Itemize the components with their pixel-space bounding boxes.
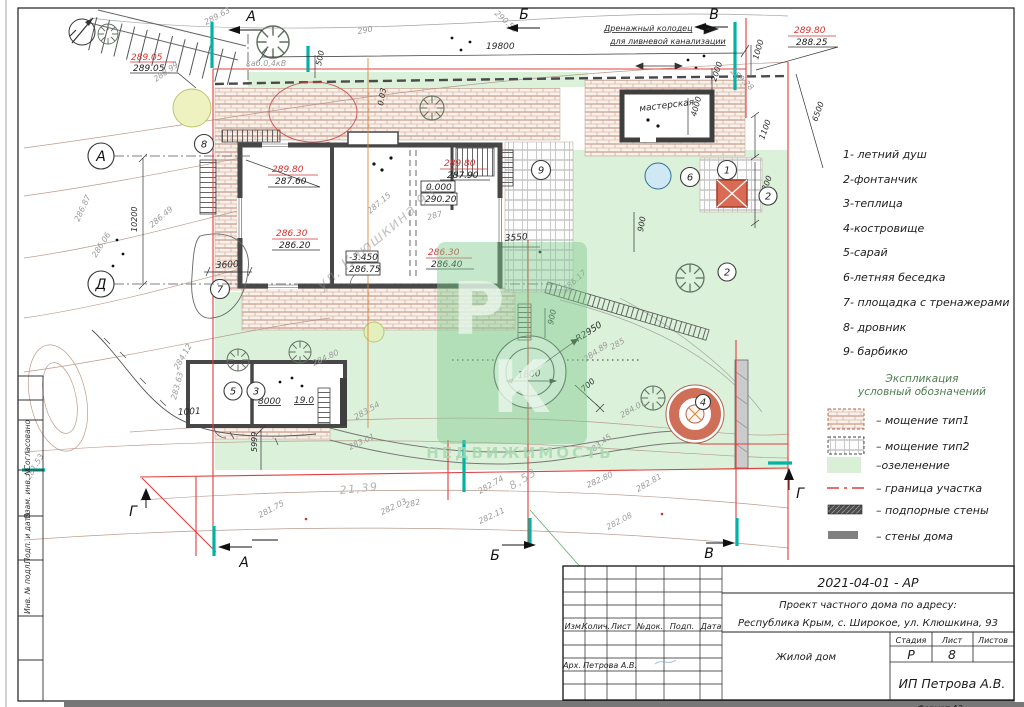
legend-swatch-paving1 [828,409,864,429]
marker-5: 5 [230,387,236,398]
stamp-label-inv: Инв. № подл. [23,562,32,614]
watermark-letter-k: К [492,345,551,429]
legend-item-1: 1- летний душ [843,148,927,161]
site-plan-svg: Дренажный колодец для ливневой канализац… [0,0,1024,707]
col-kol: Колич. [582,622,610,631]
sheets-header: Листов [977,636,1008,645]
fountain [645,163,671,189]
cable-label: каб.0,4кВ [246,59,286,68]
legend-item-8: 8- дровник [843,321,907,334]
axis-a-bottom: А [238,555,249,571]
legend-label-retain: – подпорные стены [876,504,989,517]
object-name: Жилой дом [775,652,836,663]
axis-g-left: Г [129,504,138,520]
dim-10200: 10200 [130,207,139,232]
legend-item-6: 6-летняя беседка [843,271,946,284]
stamp-label-podp: Подп. и дата [23,512,32,563]
woodshed-hatch [200,160,216,214]
axis-b-top: Б [519,7,529,23]
legend-item-2: 2-фонтанчик [843,173,918,186]
elev-5-red: 286.30 [276,229,308,239]
legend-swatch-retain [828,505,862,514]
legend-label-paving1: – мощение тип1 [876,414,970,427]
company-name: ИП Петрова А.В. [899,676,1006,691]
stage-value: Р [907,647,915,662]
marker-9: 9 [538,166,544,177]
marker-8: 8 [201,140,207,151]
legend-item-5: 5-сарай [843,246,888,259]
elev-8-black: 288.25 [796,38,828,48]
elev-2-red: 289.80 [272,165,304,175]
legend-heading-2: условный обозначений [857,386,986,398]
stage-header: Стадия [896,636,927,645]
dim-1001: 1001 [178,407,201,418]
marker-4: 4 [700,398,706,409]
doc-code: 2021-04-01 - АР [817,575,919,590]
title-block: 2021-04-01 - АР Проект частного дома по … [562,566,1014,707]
col-ndok: №док. [636,622,663,631]
elev-3-red: 289.80 [444,159,476,169]
elev-8-red: 289.80 [794,26,826,36]
legend-item-3: 3-теплица [843,197,903,210]
dim-190: 19.0 [294,396,314,406]
legend-swatch-walls [828,531,858,539]
legend-item-9: 9- барбикю [843,345,908,358]
legend-swatch-green [827,457,861,473]
dim-19800: 19800 [486,42,515,52]
drain-label-2: для ливневой канализации [609,37,726,46]
col-data: Дата [700,622,722,631]
role-arch: Арх. [562,661,581,670]
col-izm: Изм. [565,622,584,631]
elev-2-black: 287.60 [275,177,307,187]
legend-heading-1: Экспликация [885,373,959,385]
dim-3600: 3600 [216,260,240,271]
axis-d-left: Д [95,277,107,293]
dim-5999: 5999 [250,432,259,452]
legend-item-7: 7- площадка с тренажерами [843,296,1010,309]
legend-label-border: – граница участка [876,482,982,495]
axis-v-top: В [709,7,719,23]
stamp-label-agreed: Согласовано [23,419,32,470]
elev-5-black: 286.20 [279,241,311,251]
axis-a-left: А [95,149,106,165]
drain-label-1: Дренажный колодец [603,24,693,33]
marker-2: 2 [765,192,771,203]
watermark-text: НЕДВИЖИМОСТЬ [426,444,613,462]
project-title-1: Проект частного дома по адресу: [779,600,957,611]
project-title-2: Республика Крым, с. Широкое, ул. Клюшкин… [738,617,998,629]
legend-item-4: 4-костровище [843,222,925,235]
arch-name: Петрова А.В. [583,661,637,670]
stamp-label-vzam: Взам. инв. № [23,467,32,518]
axis-v-bottom: В [704,546,714,562]
col-list: Лист [610,622,632,631]
legend-label-paving2: – мощение тип2 [876,440,970,453]
col-podp: Подп. [670,622,694,631]
elev-3-black: 287.90 [447,171,479,181]
sheet-header: Лист [941,636,963,645]
marker-1: 1 [724,166,730,177]
sheet-value: 8 [948,647,956,662]
elev-1-red: 289.05 [131,53,163,63]
marker-6: 6 [687,173,693,184]
axis-b-bottom: Б [490,548,500,564]
watermark-letter-p: Р [452,267,505,351]
marker-3: 3 [253,387,259,398]
axis-a-top: А [245,9,256,25]
marker-7: 7 [217,285,224,296]
legend-swatch-paving2 [828,437,864,454]
marker-2b: 2 [724,268,730,279]
axis-g-right: Г [796,486,805,502]
drawing-sheet: Дренажный колодец для ливневой канализац… [0,0,1024,707]
legend-label-walls: – стены дома [876,530,953,543]
legend-label-green: –озеленение [876,459,950,472]
